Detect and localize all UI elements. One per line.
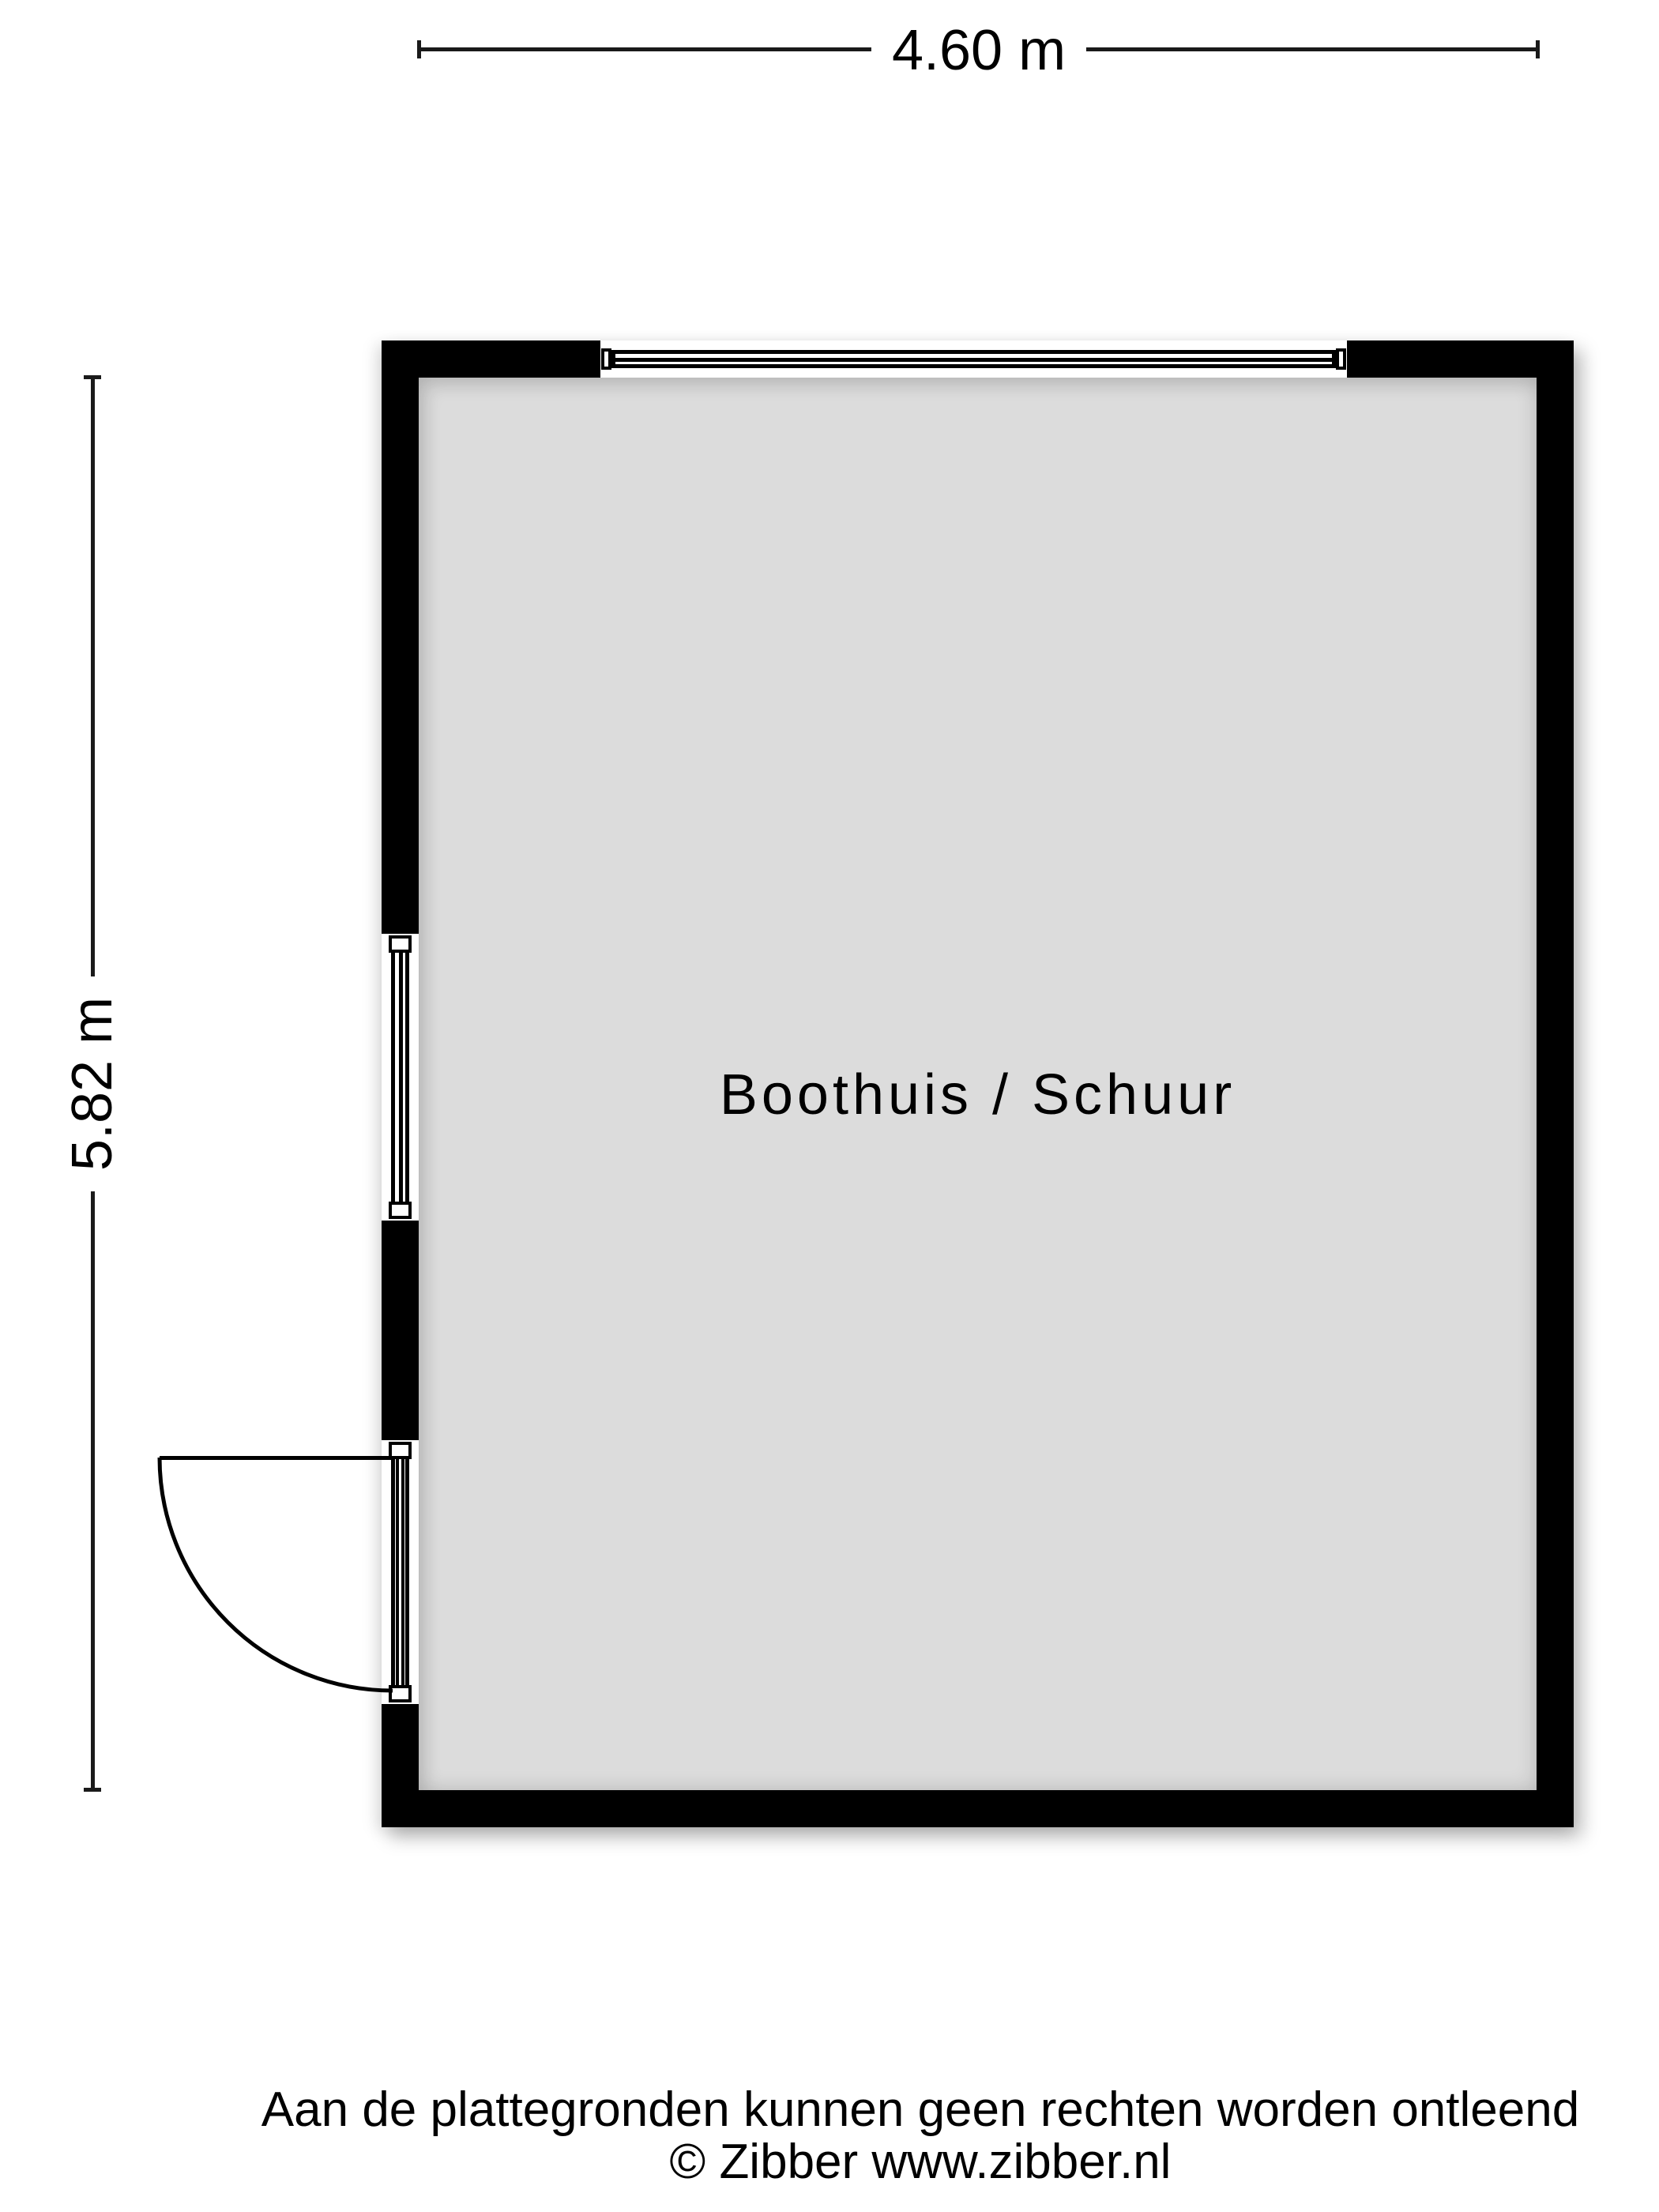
- height-dimension-tick-top: [84, 375, 101, 379]
- floorplan-page: 4.60 m 5.82 m Boothuis / Schuur: [0, 0, 1659, 2212]
- left-window-frame: [391, 945, 409, 1209]
- footer-copyright: © Zibber www.zibber.nl: [158, 2136, 1659, 2188]
- outer-walls: Boothuis / Schuur: [382, 340, 1574, 1827]
- room-label: Boothuis / Schuur: [720, 1040, 1236, 1127]
- door-swing-arc: [150, 1450, 403, 1702]
- footer-disclaimer: Aan de plattegronden kunnen geen rechten…: [158, 2084, 1659, 2136]
- top-window-center-line: [615, 358, 1332, 362]
- top-window: [600, 340, 1347, 378]
- top-window-frame: [611, 350, 1336, 368]
- room-floor: Boothuis / Schuur: [419, 378, 1537, 1790]
- width-dimension-label: 4.60 m: [871, 18, 1086, 83]
- height-dimension-label: 5.82 m: [60, 976, 125, 1191]
- footer: Aan de plattegronden kunnen geen rechten…: [158, 2084, 1659, 2188]
- left-window-cap-bottom: [389, 1202, 412, 1219]
- height-dimension-tick-bottom: [84, 1788, 101, 1792]
- top-window-cap-left: [601, 348, 611, 370]
- width-dimension-tick-right: [1536, 40, 1540, 58]
- left-window: [382, 934, 419, 1221]
- left-window-center-line: [399, 949, 403, 1206]
- left-window-cap-top: [389, 935, 412, 953]
- width-dimension-tick-left: [417, 40, 421, 58]
- top-window-cap-right: [1336, 348, 1346, 370]
